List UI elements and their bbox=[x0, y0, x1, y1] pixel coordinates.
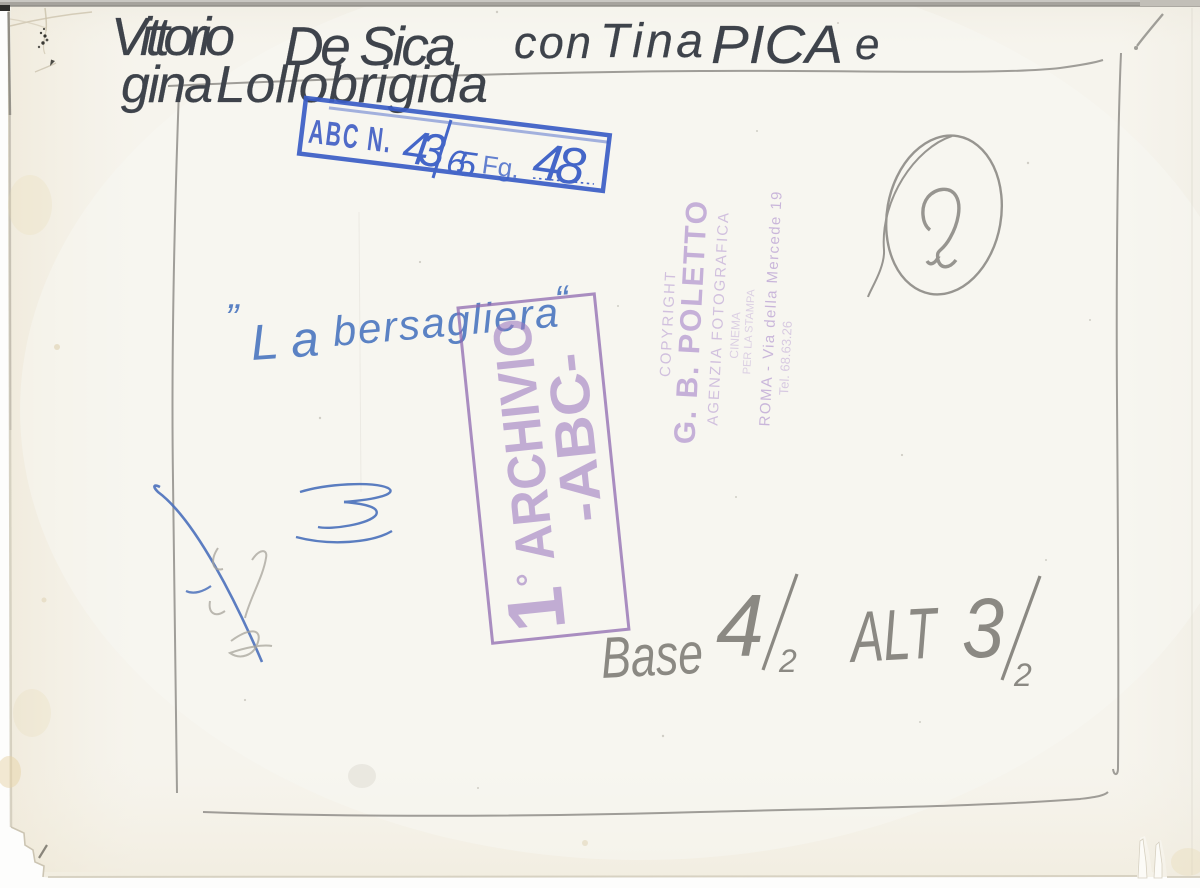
svg-text:4: 4 bbox=[716, 576, 764, 675]
svg-text:gina: gina bbox=[121, 56, 213, 114]
svg-text:„: „ bbox=[227, 273, 242, 317]
svg-text:Fg.: Fg. bbox=[480, 149, 521, 184]
svg-text:2: 2 bbox=[1013, 657, 1032, 693]
svg-text:2: 2 bbox=[778, 643, 797, 679]
svg-text:65: 65 bbox=[444, 142, 480, 185]
svg-text:1: 1 bbox=[489, 583, 582, 636]
svg-text:CINEMA: CINEMA bbox=[727, 312, 743, 359]
svg-text:ALT: ALT bbox=[846, 593, 942, 678]
svg-text:e: e bbox=[855, 20, 879, 69]
svg-text:con: con bbox=[514, 17, 591, 68]
svg-text:Tina: Tina bbox=[600, 15, 703, 68]
svg-text:PICA: PICA bbox=[711, 15, 843, 75]
svg-text:48: 48 bbox=[529, 132, 589, 197]
svg-text:Base: Base bbox=[599, 621, 704, 691]
svg-text:3: 3 bbox=[962, 581, 1004, 675]
